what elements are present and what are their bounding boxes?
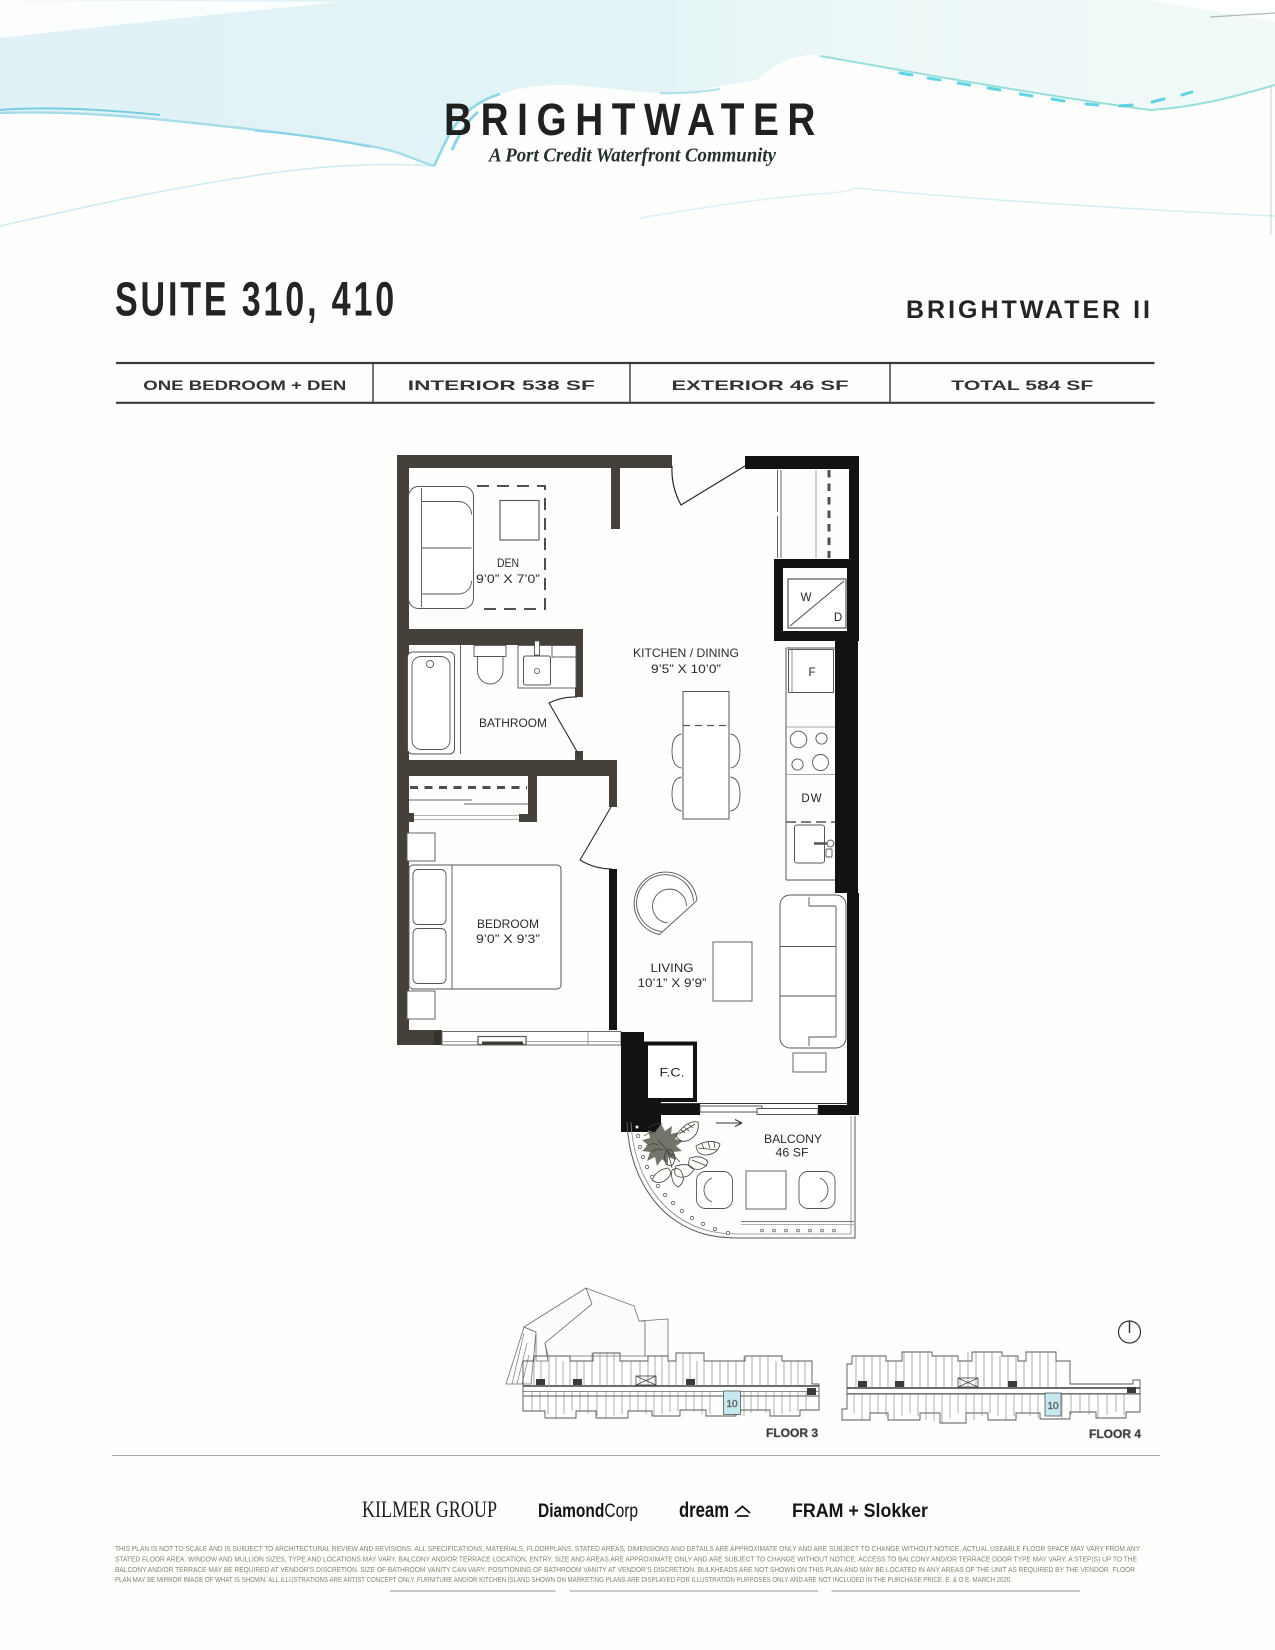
svg-text:ONE BEDROOM + DEN: ONE BEDROOM + DEN xyxy=(143,378,346,393)
svg-text:KILMER GROUP: KILMER GROUP xyxy=(362,1497,497,1522)
svg-text:THIS PLAN IS NOT TO SCALE AND: THIS PLAN IS NOT TO SCALE AND IS SUBJECT… xyxy=(115,1546,1140,1553)
svg-text:EXTERIOR 46 SF: EXTERIOR 46 SF xyxy=(672,378,849,393)
svg-text:LIVING: LIVING xyxy=(651,961,694,975)
svg-text:SUITE 310, 410: SUITE 310, 410 xyxy=(115,274,397,327)
svg-text:KITCHEN / DINING: KITCHEN / DINING xyxy=(633,646,739,660)
svg-text:F.C.: F.C. xyxy=(660,1066,685,1080)
svg-text:FLOOR 3: FLOOR 3 xyxy=(766,1426,818,1440)
svg-text:DiamondCorp: DiamondCorp xyxy=(538,1500,638,1522)
svg-text:TOTAL 584 SF: TOTAL 584 SF xyxy=(951,378,1093,393)
svg-text:9’0” X 9’3”: 9’0” X 9’3” xyxy=(476,932,540,946)
svg-text:BRIGHTWATER II: BRIGHTWATER II xyxy=(906,296,1153,324)
svg-text:F: F xyxy=(808,667,815,679)
svg-text:BRIGHTWATER: BRIGHTWATER xyxy=(444,94,824,145)
svg-text:PLAN MAY BE MIRROR IMAGE OF WH: PLAN MAY BE MIRROR IMAGE OF WHAT IS SHOW… xyxy=(115,1577,1012,1584)
svg-text:INTERIOR 538 SF: INTERIOR 538 SF xyxy=(408,378,595,393)
svg-text:FLOOR 4: FLOOR 4 xyxy=(1089,1427,1141,1441)
svg-text:STATED FLOOR AREA. WINDOW AND: STATED FLOOR AREA. WINDOW AND MULLION SI… xyxy=(115,1556,1137,1563)
svg-text:FRAM + Slokker: FRAM + Slokker xyxy=(792,1500,928,1522)
svg-text:W: W xyxy=(801,592,812,604)
svg-text:9’0” X 7’0”: 9’0” X 7’0” xyxy=(476,572,540,586)
svg-text:46 SF: 46 SF xyxy=(776,1146,809,1160)
svg-text:D: D xyxy=(834,612,842,624)
svg-text:dream: dream xyxy=(679,1499,729,1522)
svg-text:BEDROOM: BEDROOM xyxy=(477,917,539,931)
svg-text:10’1” X 9’9”: 10’1” X 9’9” xyxy=(638,976,707,990)
svg-text:10: 10 xyxy=(726,1399,738,1410)
svg-text:DEN: DEN xyxy=(497,556,519,570)
svg-text:DW: DW xyxy=(801,793,822,805)
svg-text:10: 10 xyxy=(1047,1401,1059,1412)
svg-text:BALCONY AND/OR TERRACE MAY BE: BALCONY AND/OR TERRACE MAY BE REQUIRED A… xyxy=(115,1567,1135,1574)
svg-text:BALCONY: BALCONY xyxy=(764,1132,822,1146)
svg-text:BATHROOM: BATHROOM xyxy=(479,716,547,730)
svg-text:A Port Credit Waterfront Commu: A Port Credit Waterfront Community xyxy=(487,146,776,167)
svg-text:9’5” X 10’0”: 9’5” X 10’0” xyxy=(651,662,721,676)
